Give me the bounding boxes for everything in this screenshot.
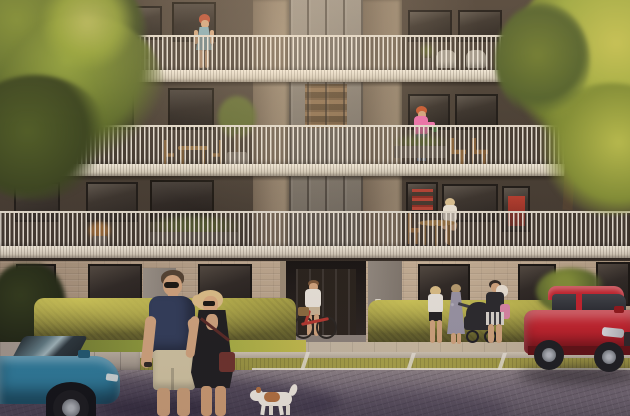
suv-mirror xyxy=(614,306,624,313)
dog-leg xyxy=(286,405,290,415)
car-mirror xyxy=(78,350,90,358)
face xyxy=(201,20,209,28)
hair xyxy=(451,284,461,293)
dog-ear xyxy=(256,387,261,393)
white-top xyxy=(428,294,443,313)
left-tree xyxy=(0,0,185,225)
cyclist xyxy=(292,280,338,342)
shorts-seam xyxy=(171,368,174,390)
leg xyxy=(201,386,212,416)
leg xyxy=(437,320,442,343)
right-tree-foliage xyxy=(495,3,590,118)
suv-rim xyxy=(602,350,616,364)
leg xyxy=(496,324,502,343)
stroller-wheel xyxy=(466,330,479,343)
leg xyxy=(157,388,170,416)
bicycle-wheel xyxy=(293,316,314,339)
right-tree xyxy=(495,0,630,260)
leg xyxy=(215,386,226,416)
car-rim xyxy=(62,399,80,416)
window-red-shelf xyxy=(406,182,438,214)
walking-mother xyxy=(482,278,510,346)
woman-foreground xyxy=(183,290,241,416)
leg xyxy=(488,324,494,343)
sunglasses xyxy=(203,301,215,306)
burgundy-bag xyxy=(219,352,235,372)
dog-brown-patch xyxy=(264,392,280,402)
suv-rim xyxy=(542,348,556,362)
leg xyxy=(451,333,456,344)
white-top xyxy=(305,289,321,308)
leg xyxy=(430,320,435,343)
patterned-skirt xyxy=(486,312,504,325)
sunglasses xyxy=(164,282,179,288)
red-suv xyxy=(518,282,630,392)
walking-woman-white-top xyxy=(424,286,446,344)
architectural-rendering-scene xyxy=(0,0,630,416)
bicycle-basket xyxy=(298,307,309,316)
red-bookshelf xyxy=(412,189,433,210)
hair-bun xyxy=(192,295,202,306)
car-headlight xyxy=(106,373,119,382)
wristwatch xyxy=(144,362,152,367)
dog-leg xyxy=(269,405,273,415)
dog xyxy=(250,384,302,414)
